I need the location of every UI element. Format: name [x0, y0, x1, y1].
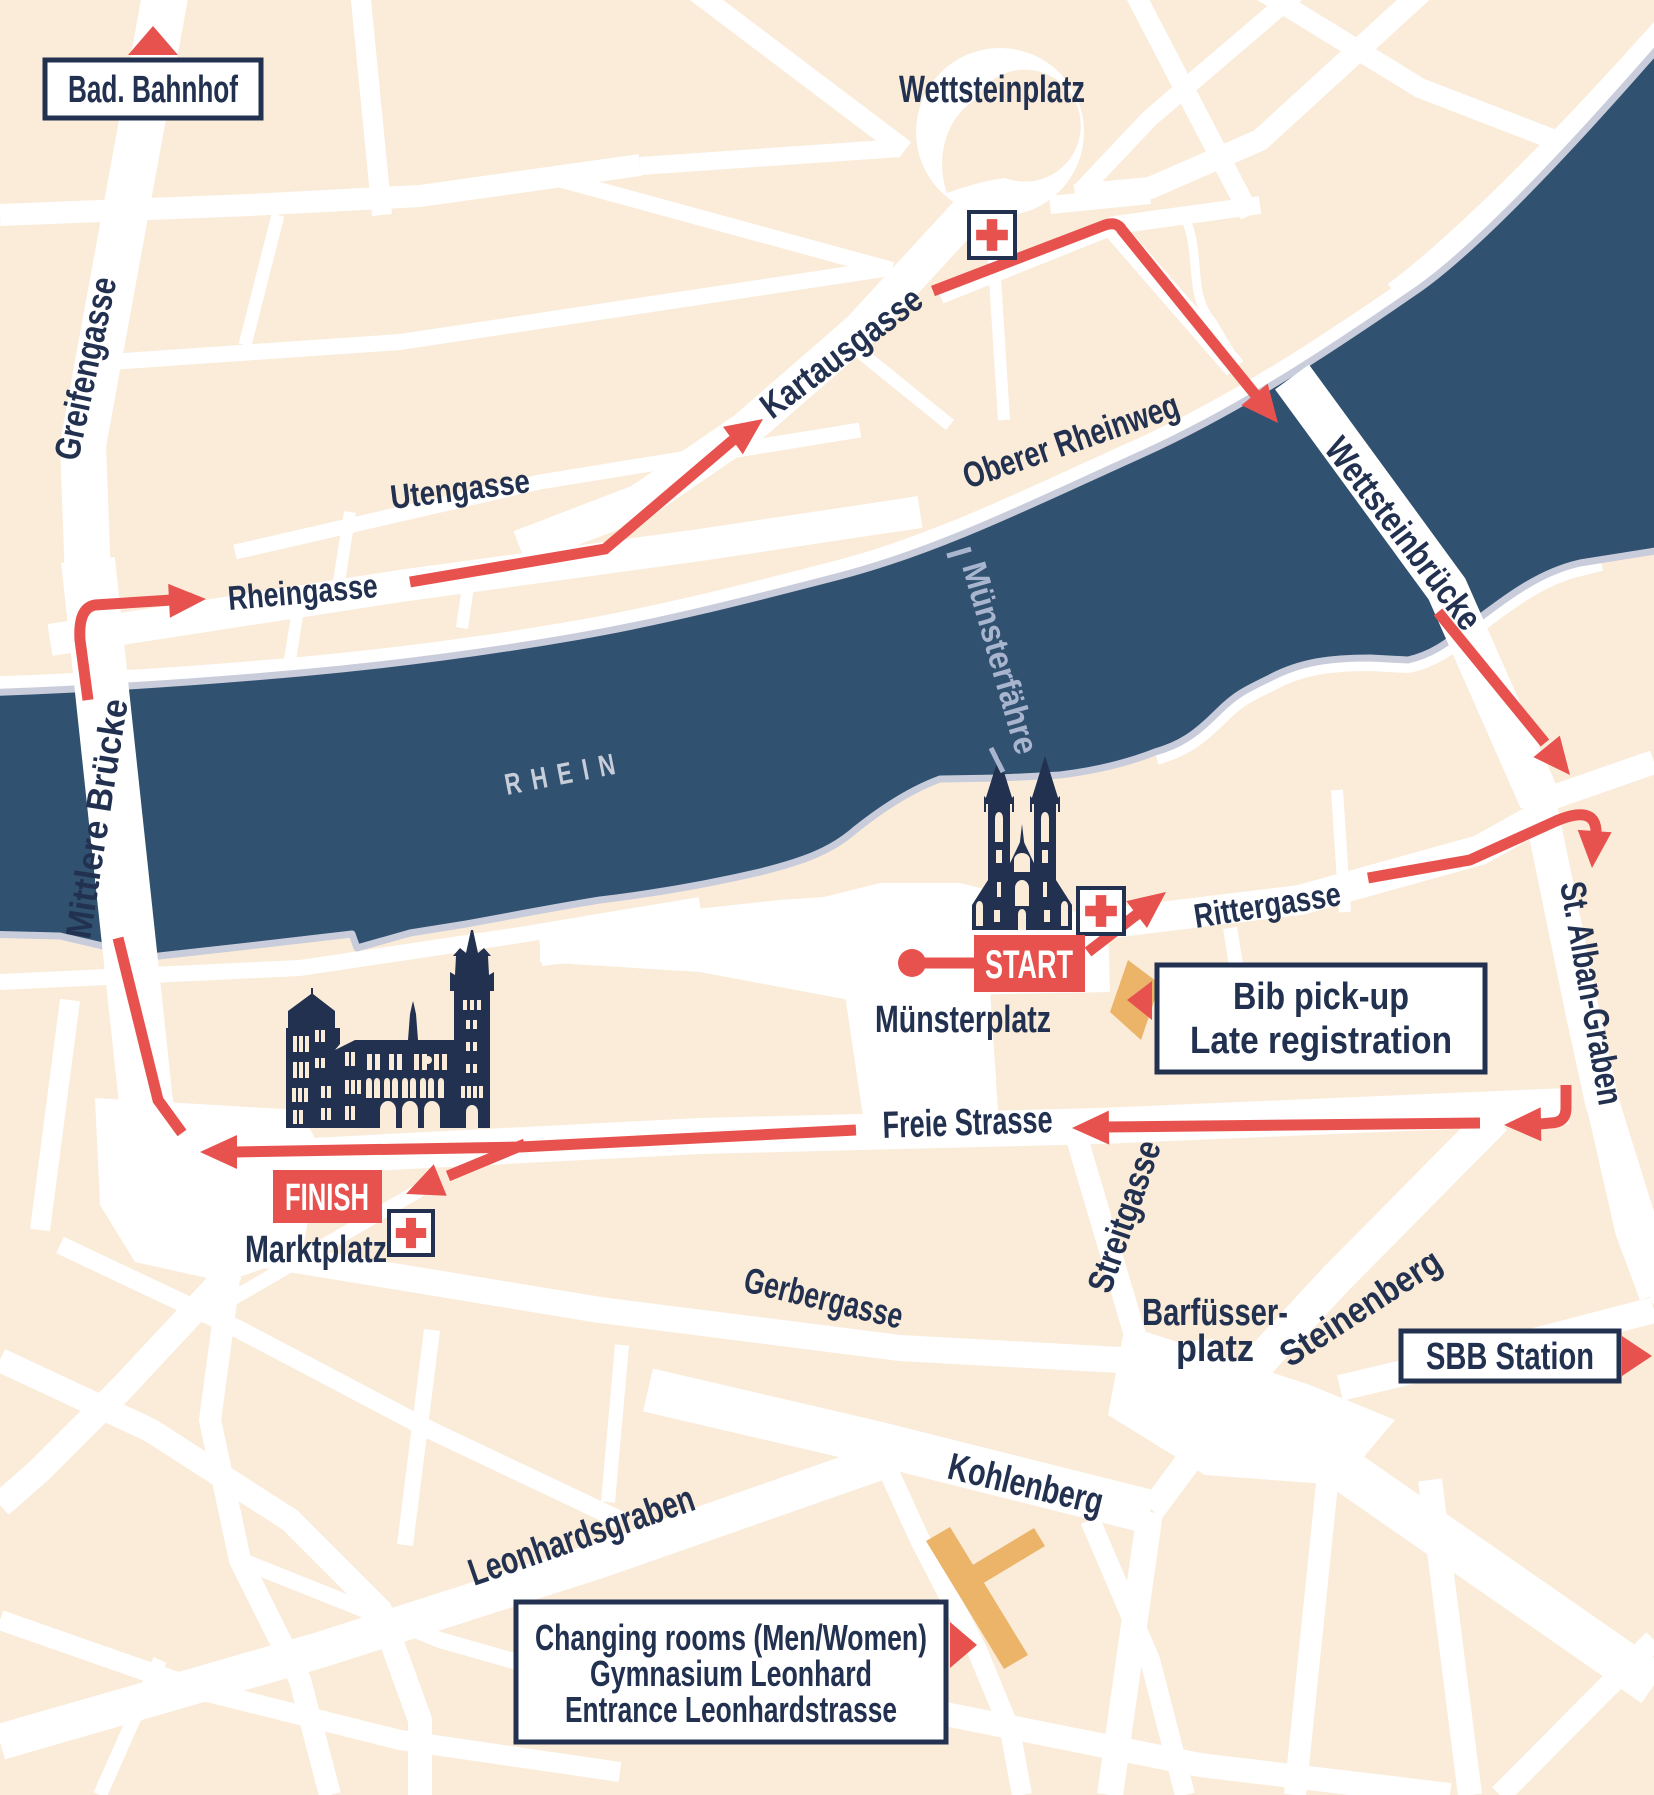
svg-text:Marktplatz: Marktplatz [245, 1229, 387, 1271]
svg-text:Freie Strasse: Freie Strasse [882, 1099, 1053, 1147]
svg-text:Bad. Bahnhof: Bad. Bahnhof [68, 69, 238, 111]
svg-text:FINISH: FINISH [285, 1177, 369, 1219]
svg-text:SBB Station: SBB Station [1426, 1336, 1594, 1378]
svg-text:Entrance Leonhardstrasse: Entrance Leonhardstrasse [565, 1689, 897, 1730]
svg-text:platz: platz [1176, 1328, 1254, 1370]
svg-text:Changing rooms (Men/Women): Changing rooms (Men/Women) [535, 1617, 927, 1658]
svg-text:Late registration: Late registration [1190, 1020, 1452, 1062]
svg-text:Münsterplatz: Münsterplatz [875, 999, 1051, 1041]
svg-text:Wettsteinplatz: Wettsteinplatz [899, 69, 1085, 111]
svg-text:Gymnasium Leonhard: Gymnasium Leonhard [590, 1653, 872, 1694]
svg-text:START: START [985, 943, 1073, 987]
svg-text:Bib pick-up: Bib pick-up [1233, 976, 1409, 1018]
